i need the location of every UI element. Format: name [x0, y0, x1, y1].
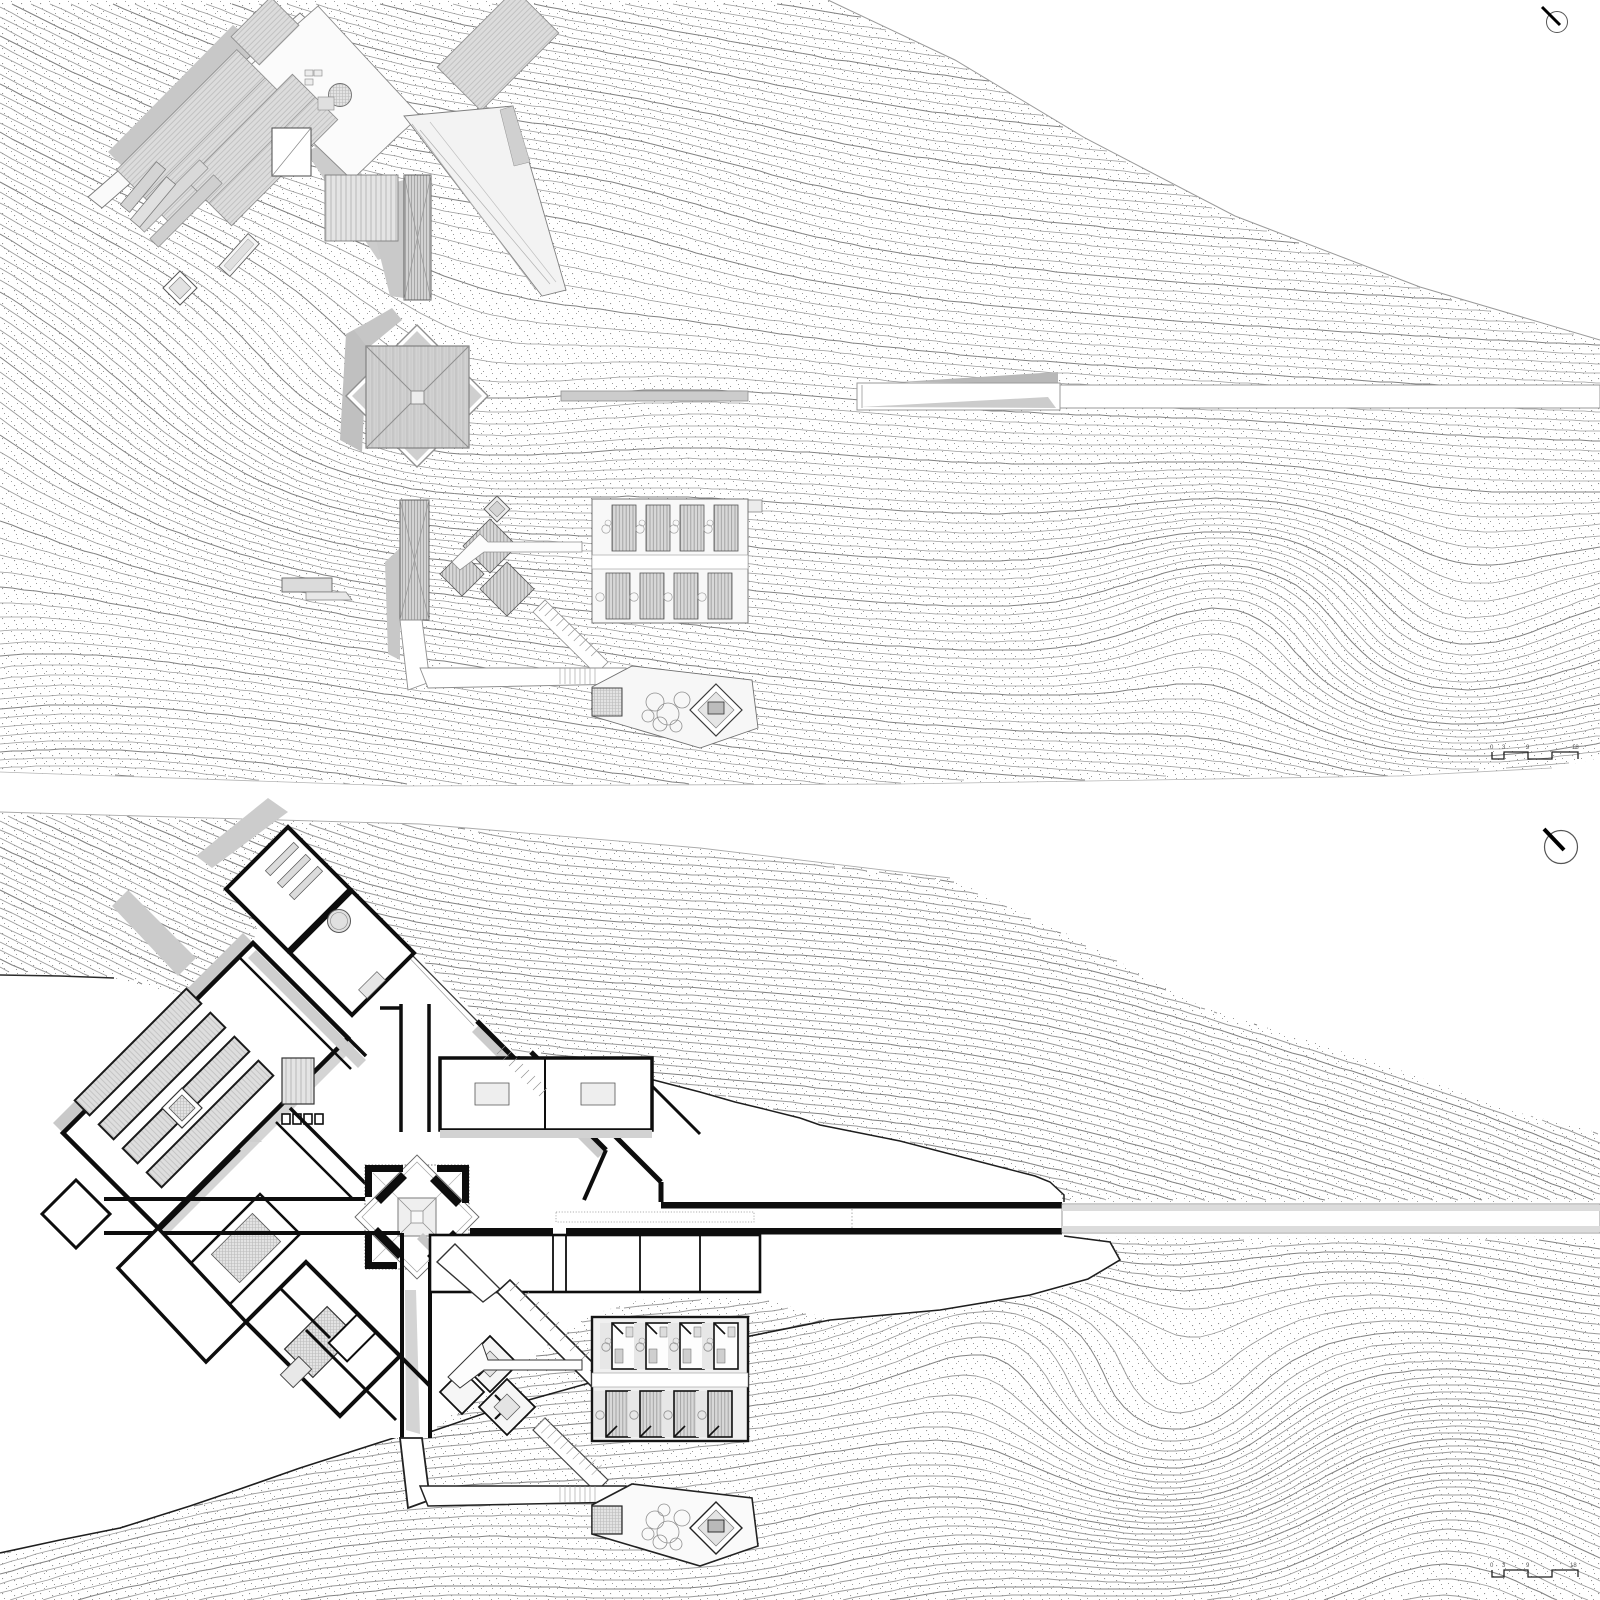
svg-text:18: 18	[1572, 745, 1579, 751]
svg-text:18: 18	[1570, 1563, 1577, 1569]
